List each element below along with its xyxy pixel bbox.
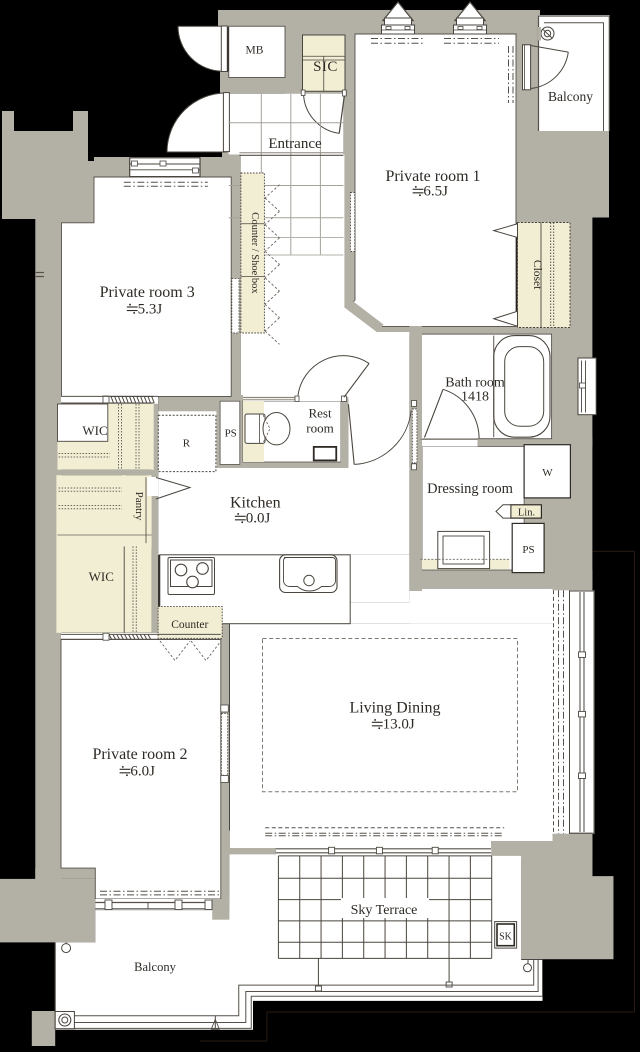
svg-text:Dressing room: Dressing room xyxy=(427,481,514,497)
svg-text:PS: PS xyxy=(522,544,534,556)
svg-text:Kitchen: Kitchen xyxy=(230,495,281,512)
svg-text:Bath room: Bath room xyxy=(445,376,505,391)
svg-text:W: W xyxy=(542,467,553,479)
svg-text:Balcony: Balcony xyxy=(548,89,593,104)
svg-text:Balcony: Balcony xyxy=(134,960,176,974)
svg-text:WIC: WIC xyxy=(89,569,114,584)
svg-text:SIC: SIC xyxy=(313,59,338,75)
svg-text:Sky Terrace: Sky Terrace xyxy=(351,903,418,918)
svg-text:Private room 2: Private room 2 xyxy=(92,746,187,763)
svg-text:Private room 1: Private room 1 xyxy=(385,168,480,185)
svg-text:R: R xyxy=(183,438,191,450)
svg-text:MB: MB xyxy=(246,45,264,57)
svg-text:Pantry: Pantry xyxy=(133,492,145,521)
svg-text:room: room xyxy=(306,421,333,436)
svg-text:6.5J: 6.5J xyxy=(423,184,448,200)
svg-text:Closet: Closet xyxy=(531,260,543,290)
svg-text:0.0J: 0.0J xyxy=(246,511,271,527)
svg-text:Private room 3: Private room 3 xyxy=(100,284,195,301)
svg-text:13.0J: 13.0J xyxy=(383,717,415,733)
svg-text:Entrance: Entrance xyxy=(268,136,322,152)
svg-text:5.3J: 5.3J xyxy=(138,301,163,317)
svg-text:Lin.: Lin. xyxy=(518,508,535,519)
svg-text:Rest: Rest xyxy=(308,406,332,421)
svg-text:Counter / Shoe box: Counter / Shoe box xyxy=(249,212,260,294)
svg-text:WIC: WIC xyxy=(82,423,107,438)
svg-text:PS: PS xyxy=(225,428,237,440)
svg-text:1418: 1418 xyxy=(461,390,489,405)
svg-text:6.0J: 6.0J xyxy=(130,764,155,780)
svg-text:Counter: Counter xyxy=(171,619,208,631)
svg-text:Living Dining: Living Dining xyxy=(349,700,440,717)
svg-text:SK: SK xyxy=(499,932,513,943)
